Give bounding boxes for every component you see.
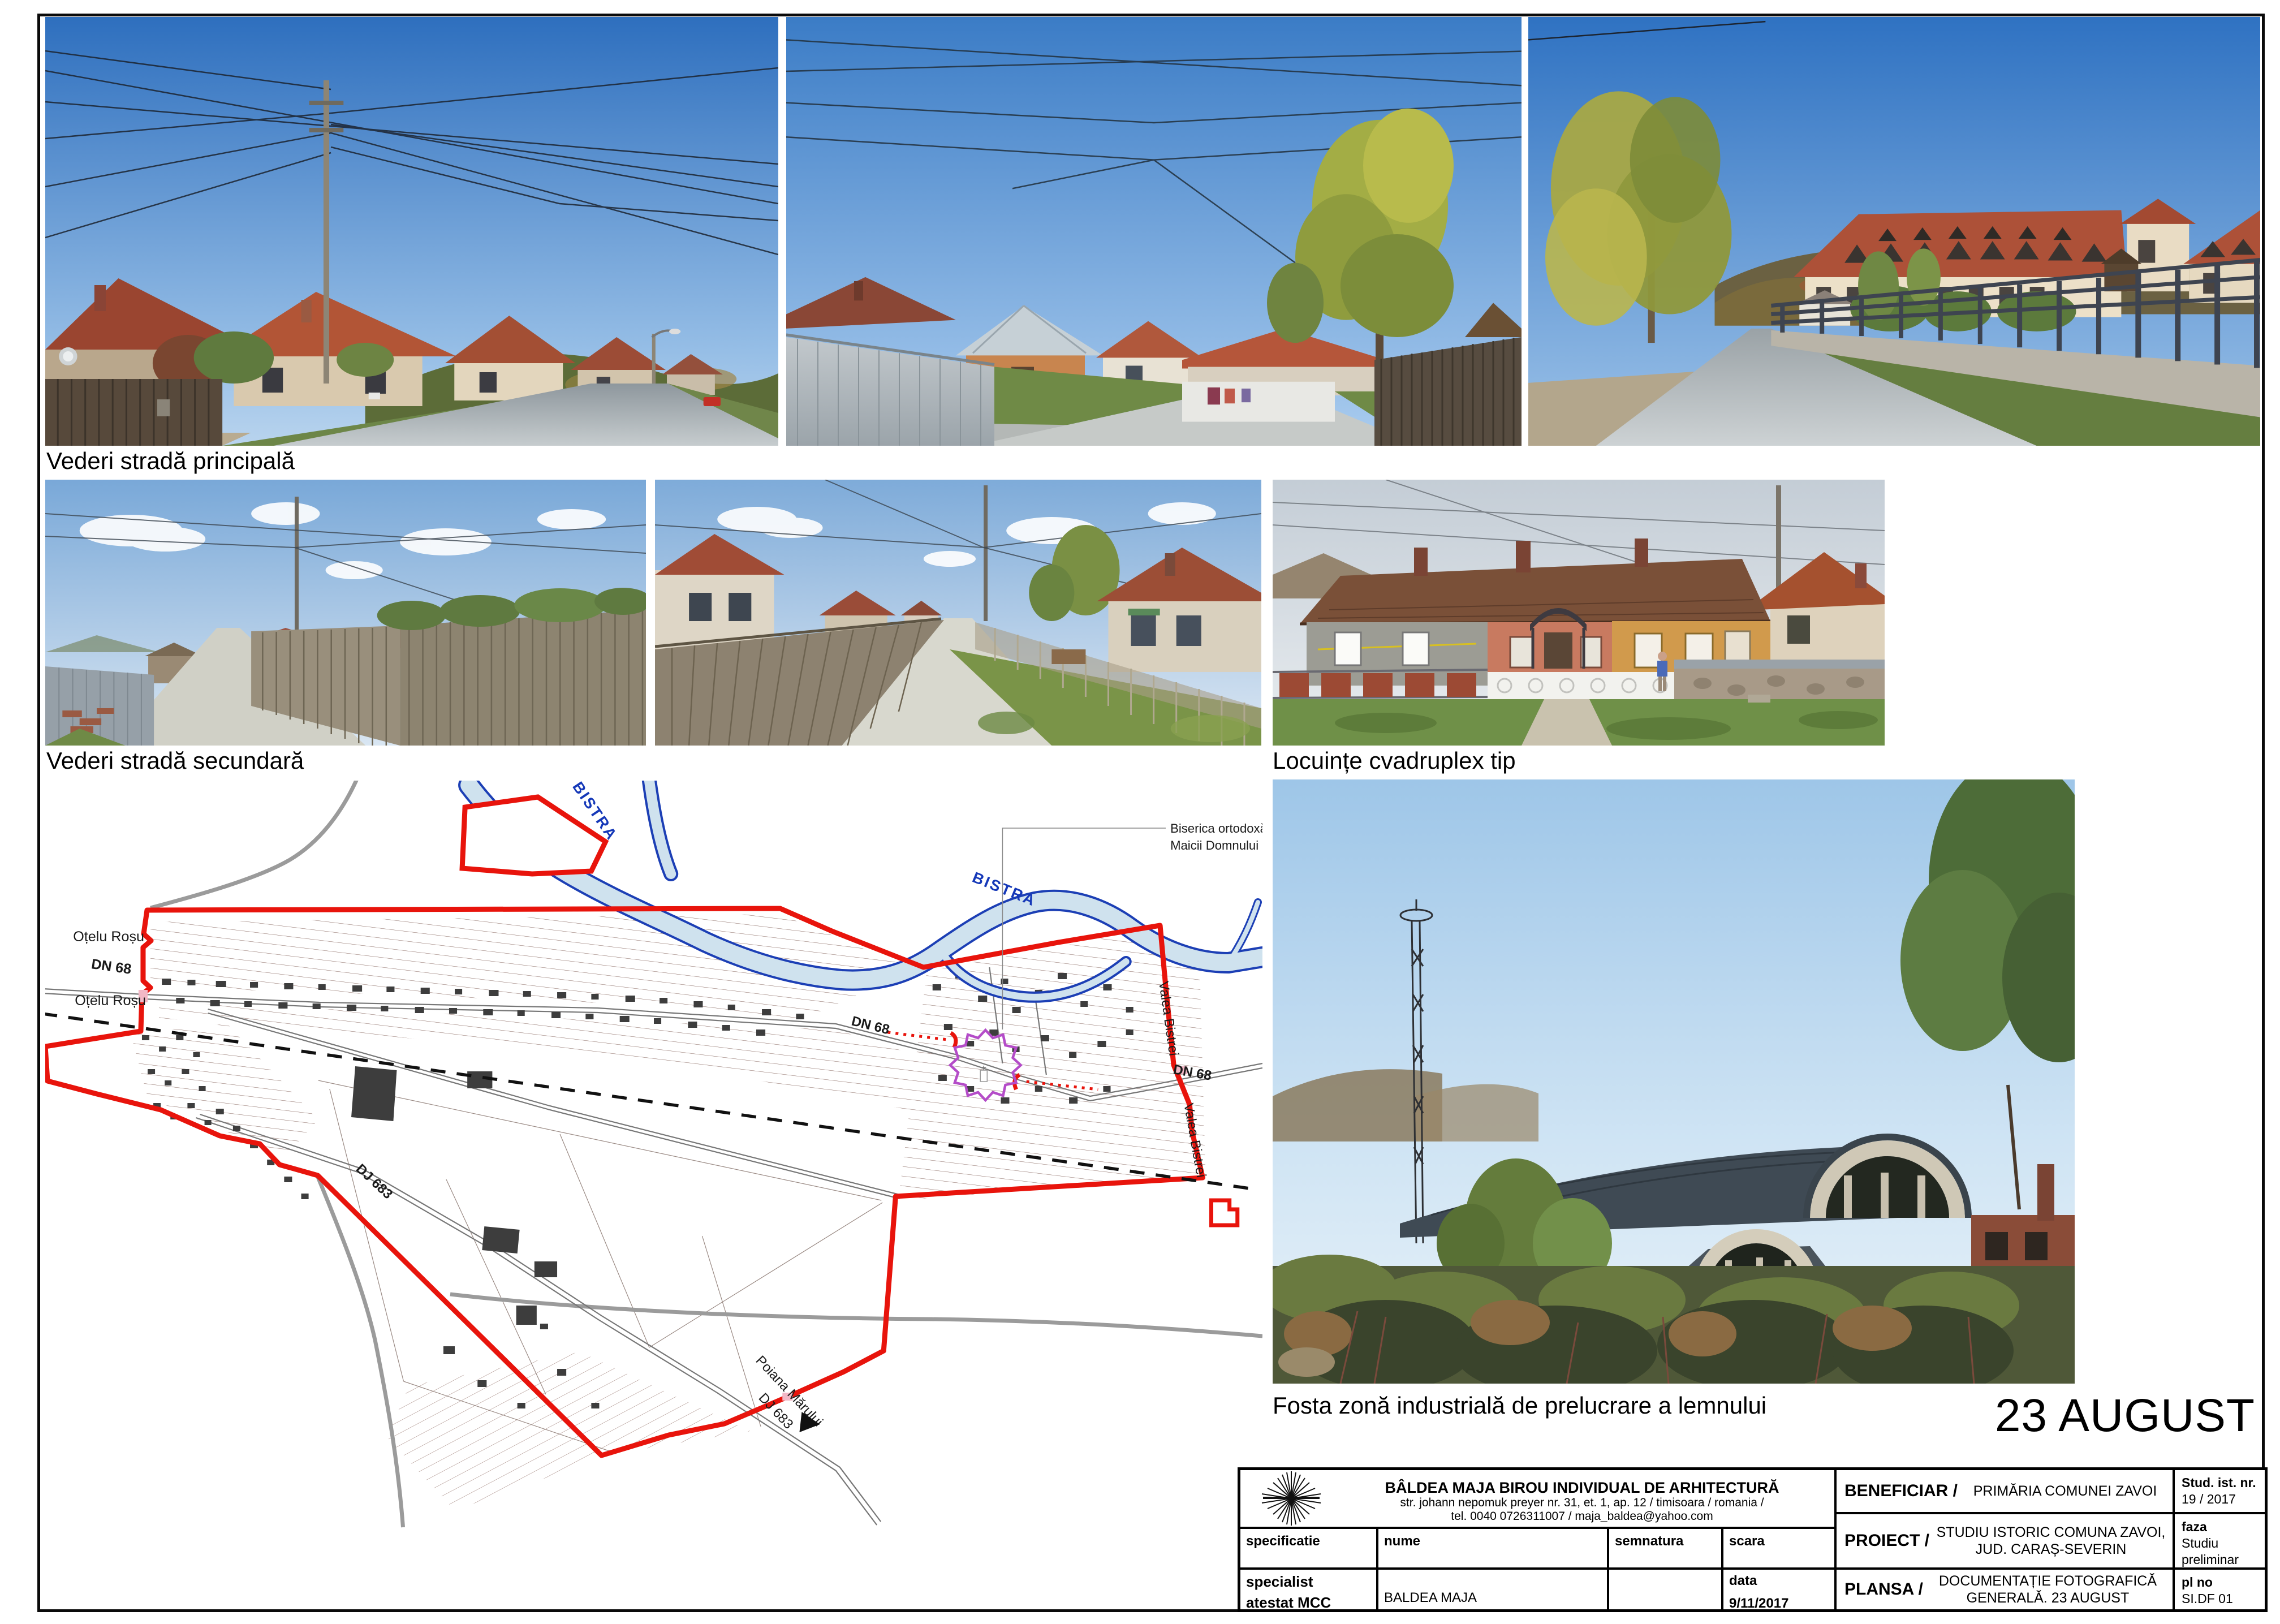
beneficiar-label: BENEFICIAR /: [1844, 1481, 1958, 1501]
faza-value-line2: preliminar PUG: [2175, 1552, 2265, 1567]
proiect-label: PROIECT /: [1844, 1531, 1929, 1550]
date-label: data: [1723, 1570, 1834, 1589]
title-block: BÂLDEA MAJA BIROU INDIVIDUAL DE ARHITECT…: [1238, 1467, 2268, 1612]
specialist-cell: specialist atestat MCC: [1240, 1570, 1376, 1609]
plansa-value-line2: GENERALĂ. 23 AUGUST: [1923, 1589, 2173, 1606]
office-logo-starburst-icon: [1257, 1471, 1325, 1526]
foreground-vegetation: [1273, 1255, 2075, 1384]
photo-industrial-zone: [1273, 779, 2075, 1384]
label-church-line1: Biserica ortodoxă Adormirea: [1170, 821, 1262, 835]
plansa-label: PLANSA /: [1844, 1580, 1923, 1599]
office-contact: tel. 0040 0726311007 / maja_baldea@yahoo…: [1335, 1510, 1829, 1523]
photo-secondary-street-2: [655, 480, 1261, 746]
specialist-line1: specialist: [1240, 1570, 1376, 1591]
col-name: nume: [1378, 1529, 1607, 1549]
label-otelu-rosu-top: Oțelu Roșu: [73, 929, 144, 945]
photo-quadruplex: [1273, 480, 1885, 746]
photo-main-street-3: [1528, 17, 2260, 446]
beneficiar-cell: BENEFICIAR / PRIMĂRIA COMUNEI ZAVOI: [1837, 1470, 2173, 1512]
plno-label: pl no: [2175, 1570, 2265, 1591]
plno-cell: pl no SI.DF 01: [2175, 1570, 2265, 1609]
proiect-cell: PROIECT / STUDIU ISTORIC COMUNA ZAVOI, J…: [1837, 1514, 2173, 1567]
faza-cell: faza Studiu preliminar PUG: [2175, 1514, 2265, 1567]
office-address: str. johann nepomuk preyer nr. 31, et. 1…: [1335, 1496, 1829, 1510]
cadastral-map: Oțelu Roșu DN 68 Oțelu Roșu DN 68 DN 68 …: [45, 781, 1262, 1573]
power-pole: [324, 80, 329, 384]
col-specification: specificatie: [1240, 1529, 1376, 1549]
photo-main-street-2: [786, 17, 1522, 446]
stud-value: 19 / 2017: [2175, 1491, 2265, 1507]
col-signature: semnatura: [1609, 1529, 1721, 1549]
beneficiar-value: PRIMĂRIA COMUNEI ZAVOI: [1958, 1483, 2173, 1500]
photo-main-street-2-graphic: [786, 17, 1522, 446]
proiect-value-line1: STUDIU ISTORIC COMUNA ZAVOI,: [1929, 1524, 2173, 1541]
photo-quadruplex-graphic: [1273, 480, 1885, 746]
plansa-cell: PLANSA / DOCUMENTAȚIE FOTOGRAFICĂ GENERA…: [1837, 1570, 2173, 1609]
red-car: [704, 397, 721, 406]
office-cell: BÂLDEA MAJA BIROU INDIVIDUAL DE ARHITECT…: [1240, 1470, 1834, 1527]
plno-value: SI.DF 01: [2175, 1591, 2265, 1607]
caption-industrial: Fosta zonă industrială de prelucrare a l…: [1273, 1393, 1766, 1419]
stud-label: Stud. ist. nr.: [2175, 1470, 2265, 1491]
signature-cell: [1609, 1570, 1721, 1609]
photo-secondary-street-1-graphic: [45, 480, 646, 746]
faza-value-line1: Studiu: [2175, 1535, 2265, 1552]
caption-quadruplex: Locuințe cvadruplex tip: [1273, 748, 1516, 774]
faza-label: faza: [2175, 1514, 2265, 1535]
plansa-sheet: Vederi stradă principală: [0, 0, 2280, 1624]
stud-cell: Stud. ist. nr. 19 / 2017: [2175, 1470, 2265, 1512]
photo-secondary-street-2-graphic: [655, 480, 1261, 746]
photo-secondary-street-1: [45, 480, 646, 746]
photo-main-street-1-graphic: [45, 17, 778, 446]
photo-main-street-3-graphic: [1528, 17, 2260, 446]
label-church-line2: Maicii Domnului (1936): [1170, 838, 1262, 852]
locality-title: 23 AUGUST: [1995, 1389, 2255, 1442]
photo-main-street-1: [45, 17, 778, 446]
specialist-line2: atestat MCC: [1240, 1591, 1376, 1609]
photo-industrial-zone-graphic: [1273, 779, 2075, 1384]
plansa-value-line1: DOCUMENTAȚIE FOTOGRAFICĂ: [1923, 1573, 2173, 1589]
date-cell: data 9/11/2017: [1723, 1570, 1834, 1609]
label-otelu-rosu-bottom: Oțelu Roșu: [75, 993, 146, 1009]
white-fence: [1182, 382, 1335, 422]
caption-main-street: Vederi stradă principală: [46, 448, 295, 474]
caption-secondary-street: Vederi stradă secundară: [46, 748, 304, 774]
specialist-name: BALDEA MAJA: [1378, 1570, 1607, 1606]
proiect-value-line2: JUD. CARAȘ-SEVERIN: [1929, 1541, 2173, 1558]
date-value: 9/11/2017: [1723, 1589, 1834, 1609]
col-scale: scara: [1723, 1529, 1834, 1549]
office-name: BÂLDEA MAJA BIROU INDIVIDUAL DE ARHITECT…: [1335, 1479, 1829, 1496]
